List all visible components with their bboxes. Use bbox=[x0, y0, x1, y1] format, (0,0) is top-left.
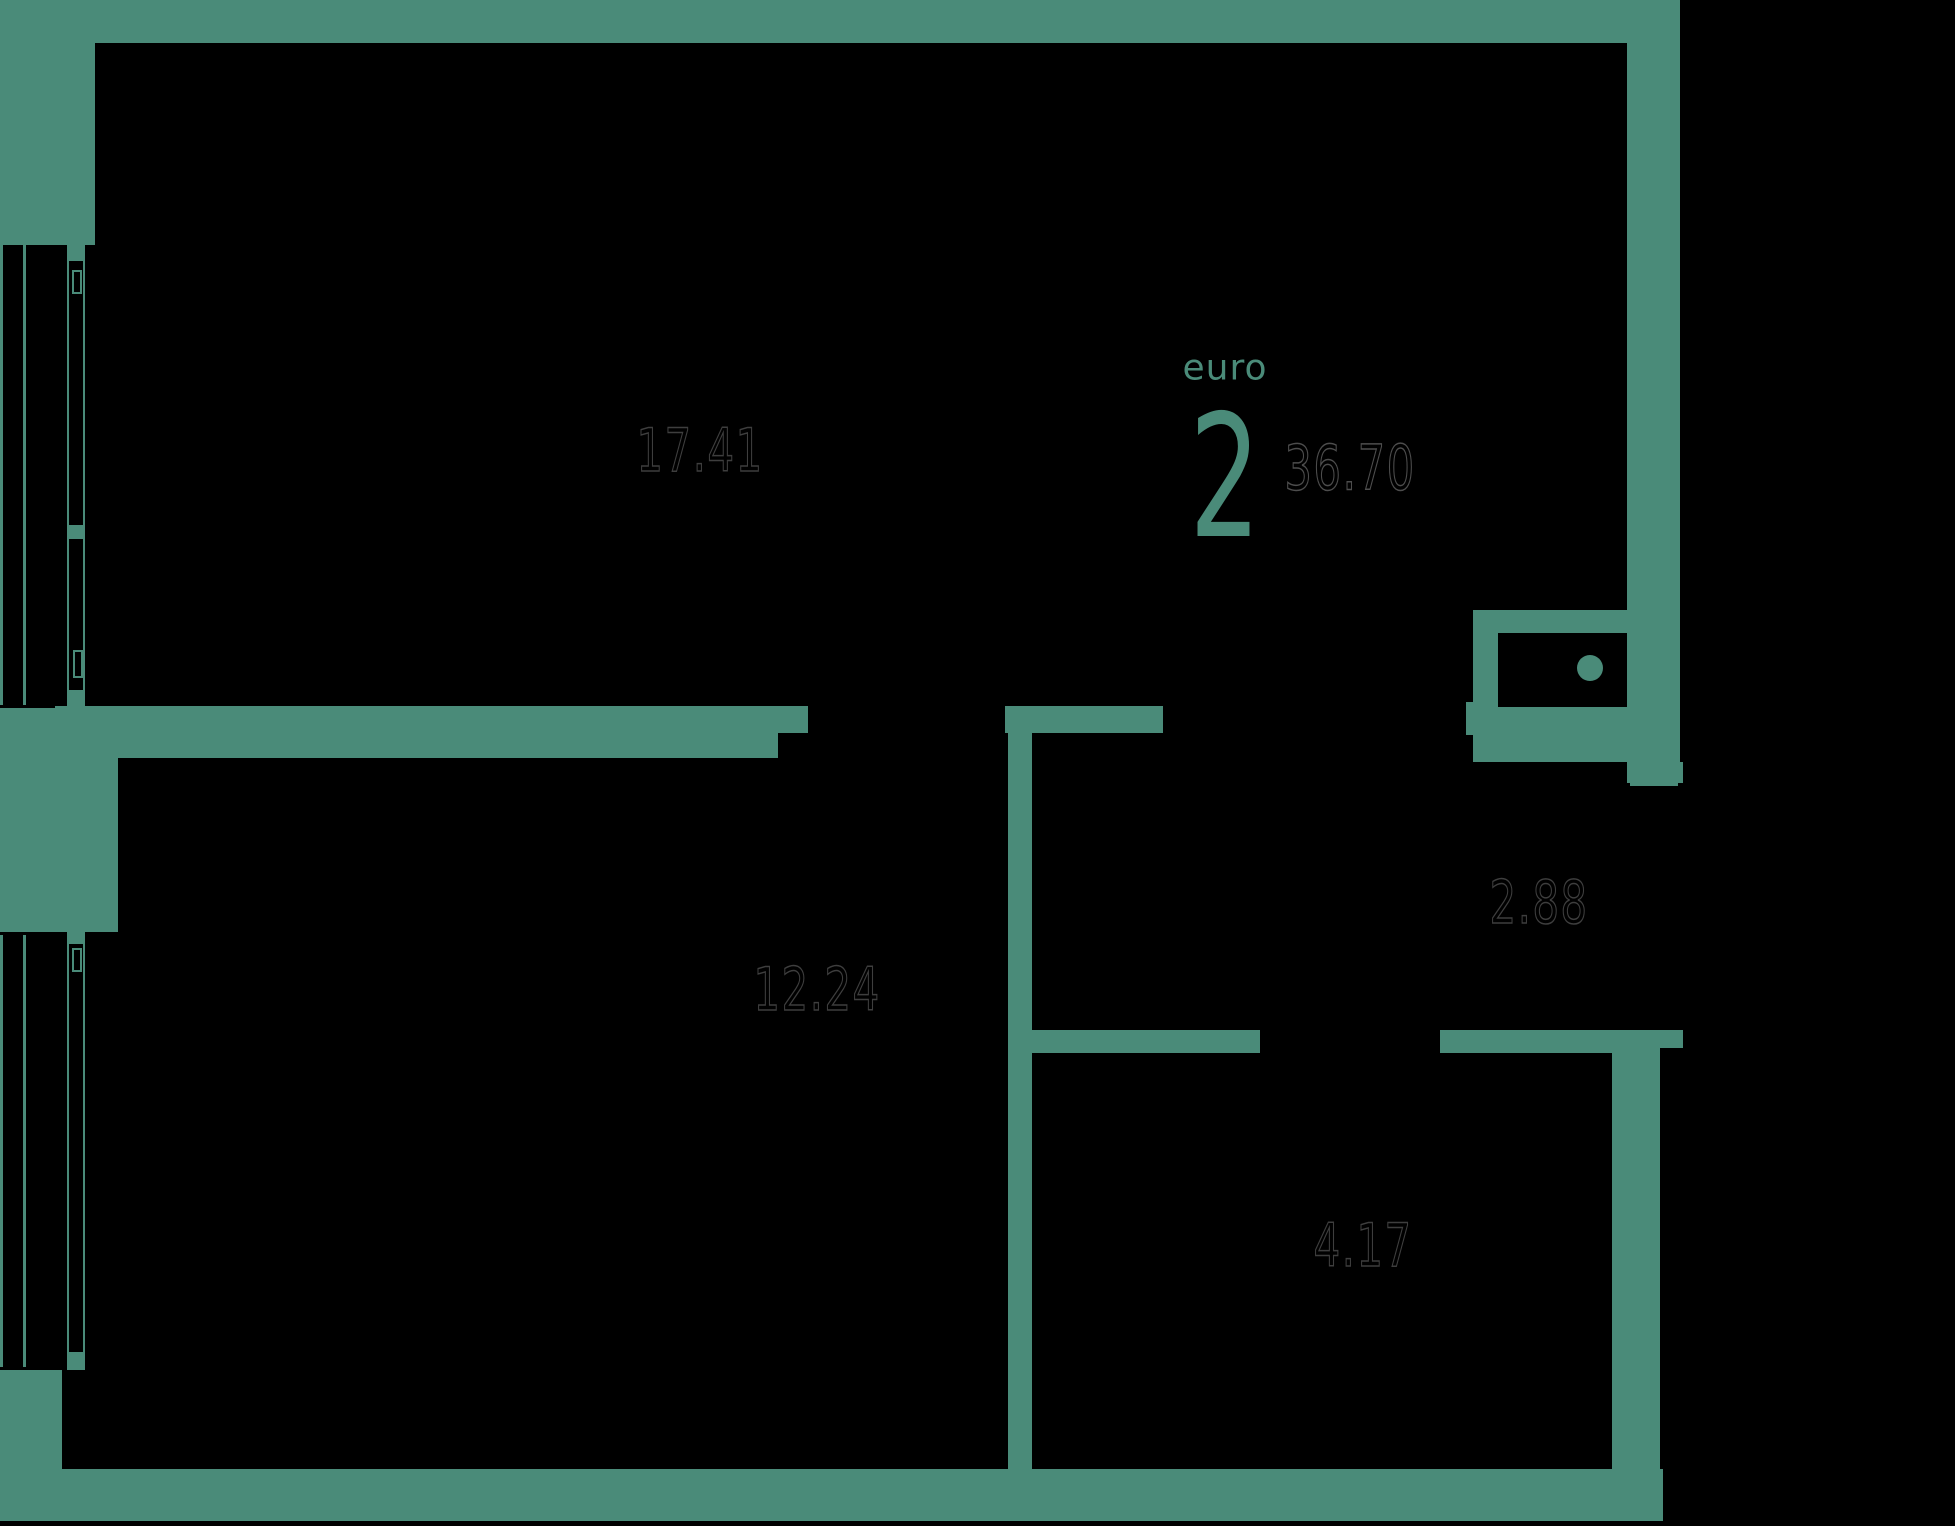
window-lower-connector-bottom bbox=[67, 1352, 85, 1370]
window-upper-connector-mid bbox=[67, 527, 85, 537]
door-threshold-line bbox=[1630, 783, 1678, 786]
apartment-rooms-count: 2 bbox=[1189, 379, 1260, 577]
wall-right-foot bbox=[1627, 762, 1683, 783]
door-handle-icon bbox=[1577, 655, 1603, 681]
total-area-label: 36.70 bbox=[1284, 432, 1415, 505]
wall-hallway-top bbox=[1005, 706, 1163, 733]
bedroom-area-label: 12.24 bbox=[753, 955, 880, 1025]
floor-plan: euro 2 36.70 17.41 12.24 2.88 4.17 bbox=[0, 0, 1955, 1526]
window-lower-connector-top bbox=[67, 932, 85, 942]
wall-bathroom-top-left bbox=[1008, 1030, 1260, 1053]
wall-top-outer bbox=[0, 0, 1680, 43]
wall-bottom-outer bbox=[0, 1469, 1663, 1521]
wall-living-bedroom-divider bbox=[55, 706, 778, 758]
living-kitchen-area-label: 17.41 bbox=[636, 416, 763, 486]
window-upper-sash-1 bbox=[67, 259, 85, 527]
wall-bathroom-step bbox=[1656, 1030, 1683, 1048]
balcony-edge-line-lower-inner bbox=[23, 935, 26, 1367]
wall-corner-bottom-left bbox=[0, 1370, 62, 1469]
window-upper-sash-2-handle bbox=[73, 650, 83, 678]
balcony-edge-line-upper-outer bbox=[0, 245, 3, 705]
entrance-door-leaf bbox=[1498, 633, 1627, 707]
window-lower-sash-handle bbox=[72, 948, 82, 972]
wall-bathroom-right bbox=[1612, 1030, 1660, 1521]
wall-right-outer bbox=[1627, 0, 1680, 762]
entrance-door-frame-tab bbox=[1466, 702, 1473, 735]
window-upper-connector-bottom bbox=[67, 692, 85, 706]
window-upper-connector-top bbox=[67, 245, 85, 259]
wall-divider-jamb bbox=[778, 706, 808, 733]
wall-corner-top-left bbox=[0, 0, 95, 245]
balcony-edge-line-lower-outer bbox=[0, 935, 3, 1367]
window-upper-sash-1-handle bbox=[72, 270, 82, 294]
window-lower-sash bbox=[67, 942, 85, 1365]
wall-inner-vertical bbox=[1008, 733, 1032, 1469]
bathroom-area-label: 4.17 bbox=[1313, 1211, 1412, 1281]
balcony-edge-line-upper-inner bbox=[23, 245, 26, 705]
hallway-area-label: 2.88 bbox=[1489, 868, 1588, 938]
